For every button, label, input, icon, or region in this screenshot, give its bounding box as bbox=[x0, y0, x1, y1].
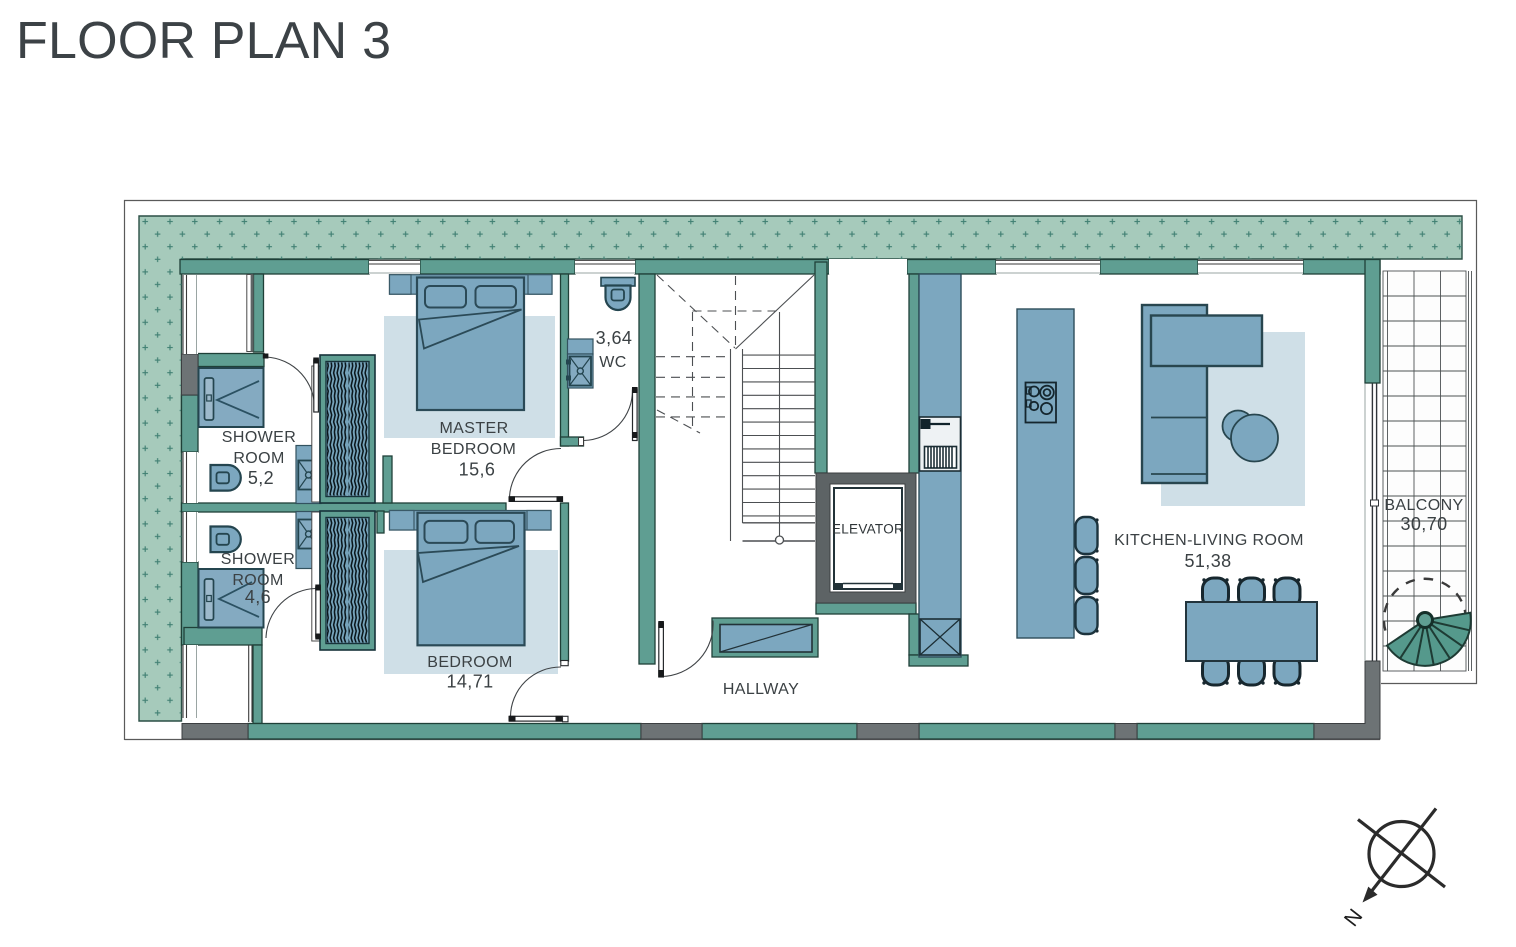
svg-text:3,64: 3,64 bbox=[596, 328, 633, 348]
svg-text:KITCHEN-LIVING ROOM: KITCHEN-LIVING ROOM bbox=[1114, 532, 1304, 549]
svg-text:HALLWAY: HALLWAY bbox=[723, 681, 799, 698]
svg-text:5,2: 5,2 bbox=[248, 468, 274, 488]
svg-text:15,6: 15,6 bbox=[459, 460, 496, 480]
svg-text:SHOWER: SHOWER bbox=[221, 551, 295, 568]
svg-text:BALCONY: BALCONY bbox=[1384, 497, 1463, 514]
svg-text:4,6: 4,6 bbox=[245, 587, 271, 607]
svg-text:BEDROOM: BEDROOM bbox=[427, 654, 512, 671]
svg-text:ELEVATOR: ELEVATOR bbox=[832, 522, 904, 537]
svg-text:WC: WC bbox=[599, 354, 626, 371]
svg-text:51,38: 51,38 bbox=[1184, 551, 1231, 571]
svg-text:MASTER: MASTER bbox=[439, 420, 508, 437]
svg-text:14,71: 14,71 bbox=[446, 672, 493, 692]
svg-text:ROOM: ROOM bbox=[233, 450, 284, 467]
svg-text:FLOOR PLAN 3: FLOOR PLAN 3 bbox=[16, 12, 391, 70]
svg-text:SHOWER: SHOWER bbox=[222, 429, 296, 446]
svg-text:30,70: 30,70 bbox=[1400, 514, 1447, 534]
svg-text:BEDROOM: BEDROOM bbox=[431, 441, 516, 458]
